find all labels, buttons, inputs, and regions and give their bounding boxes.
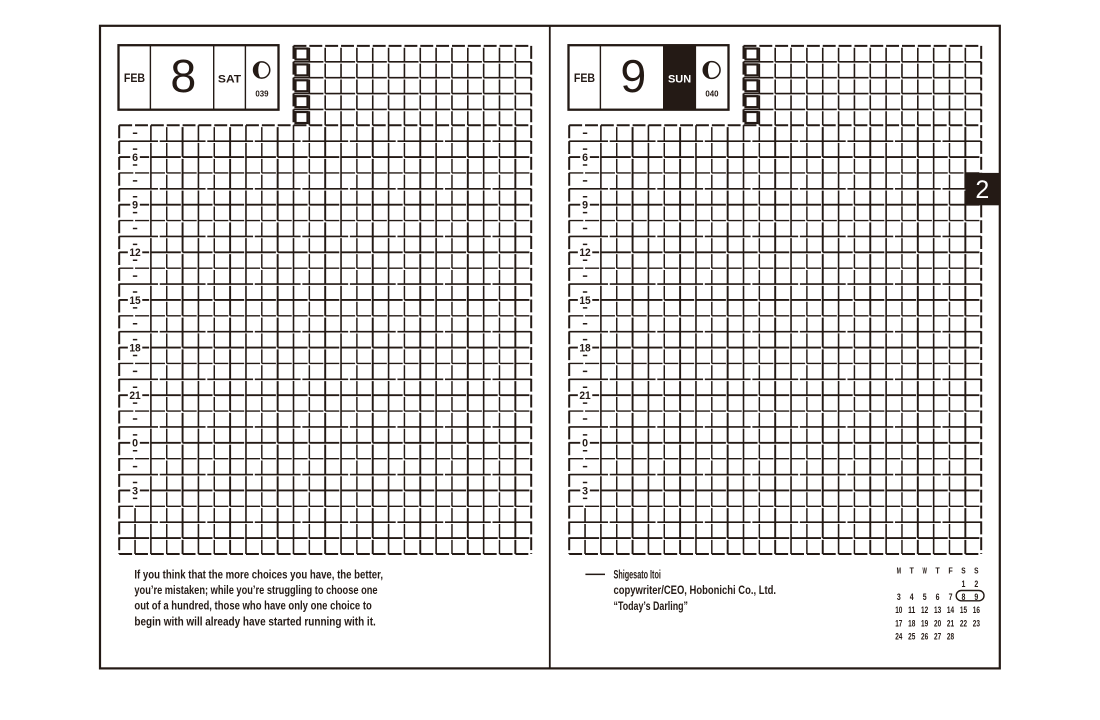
svg-text:16: 16 (973, 605, 980, 615)
svg-text:W: W (922, 566, 926, 576)
svg-text:21: 21 (579, 390, 590, 402)
svg-text:Shigesato Itoi: Shigesato Itoi (614, 567, 661, 581)
svg-text:15: 15 (579, 295, 590, 307)
svg-text:0: 0 (132, 438, 138, 450)
svg-text:28: 28 (947, 632, 954, 642)
svg-text:21: 21 (947, 618, 954, 628)
svg-text:9: 9 (132, 200, 138, 212)
svg-text:M: M (897, 566, 901, 576)
svg-text:If you think that the more cho: If you think that the more choices you h… (134, 567, 383, 581)
svg-text:SUN: SUN (668, 73, 691, 85)
svg-text:040: 040 (705, 88, 718, 98)
svg-text:039: 039 (255, 88, 268, 98)
svg-text:5: 5 (923, 592, 927, 602)
svg-text:you’re mistaken; while you’re: you’re mistaken; while you’re struggling… (134, 583, 377, 597)
svg-text:3: 3 (132, 485, 138, 497)
svg-text:2: 2 (975, 176, 989, 204)
svg-text:SAT: SAT (218, 73, 241, 85)
svg-text:25: 25 (908, 632, 915, 642)
svg-text:out of a hundred, those who ha: out of a hundred, those who have only on… (134, 599, 371, 613)
svg-text:9: 9 (582, 200, 588, 212)
svg-text:FEB: FEB (124, 72, 145, 85)
svg-text:begin with will already have s: begin with will already have started run… (134, 614, 375, 628)
svg-text:7: 7 (949, 592, 953, 602)
svg-text:6: 6 (582, 152, 588, 164)
svg-text:12: 12 (129, 247, 140, 259)
svg-text:18: 18 (129, 342, 140, 354)
svg-text:T: T (910, 566, 914, 576)
svg-text:0: 0 (582, 438, 588, 450)
svg-text:3: 3 (582, 485, 588, 497)
svg-text:4: 4 (910, 592, 914, 602)
svg-text:9: 9 (620, 50, 646, 102)
svg-text:F: F (948, 566, 952, 576)
svg-text:6: 6 (132, 152, 138, 164)
svg-text:12: 12 (921, 605, 928, 615)
svg-text:20: 20 (934, 618, 941, 628)
svg-text:8: 8 (170, 50, 196, 102)
svg-text:6: 6 (936, 592, 940, 602)
svg-text:27: 27 (934, 632, 941, 642)
svg-text:10: 10 (895, 605, 902, 615)
svg-text:18: 18 (908, 618, 915, 628)
svg-text:T: T (935, 566, 939, 576)
svg-text:17: 17 (895, 618, 902, 628)
svg-text:1: 1 (962, 579, 966, 589)
svg-text:18: 18 (579, 342, 590, 354)
svg-text:15: 15 (129, 295, 140, 307)
svg-text:21: 21 (129, 390, 140, 402)
svg-text:19: 19 (921, 618, 928, 628)
svg-text:11: 11 (908, 605, 915, 615)
svg-text:S: S (961, 566, 966, 576)
svg-text:12: 12 (579, 247, 590, 259)
svg-text:FEB: FEB (574, 72, 595, 85)
svg-text:2: 2 (974, 579, 978, 589)
svg-text:copywriter/CEO, Hobonichi Co.,: copywriter/CEO, Hobonichi Co., Ltd. (614, 583, 777, 597)
svg-text:“Today’s Darling”: “Today’s Darling” (614, 599, 689, 613)
svg-text:S: S (974, 566, 979, 576)
svg-text:15: 15 (960, 605, 967, 615)
svg-text:26: 26 (921, 632, 928, 642)
svg-text:14: 14 (947, 605, 954, 615)
svg-text:3: 3 (897, 592, 901, 602)
svg-text:13: 13 (934, 605, 941, 615)
svg-text:24: 24 (895, 632, 902, 642)
svg-text:23: 23 (973, 618, 980, 628)
svg-text:22: 22 (960, 618, 967, 628)
